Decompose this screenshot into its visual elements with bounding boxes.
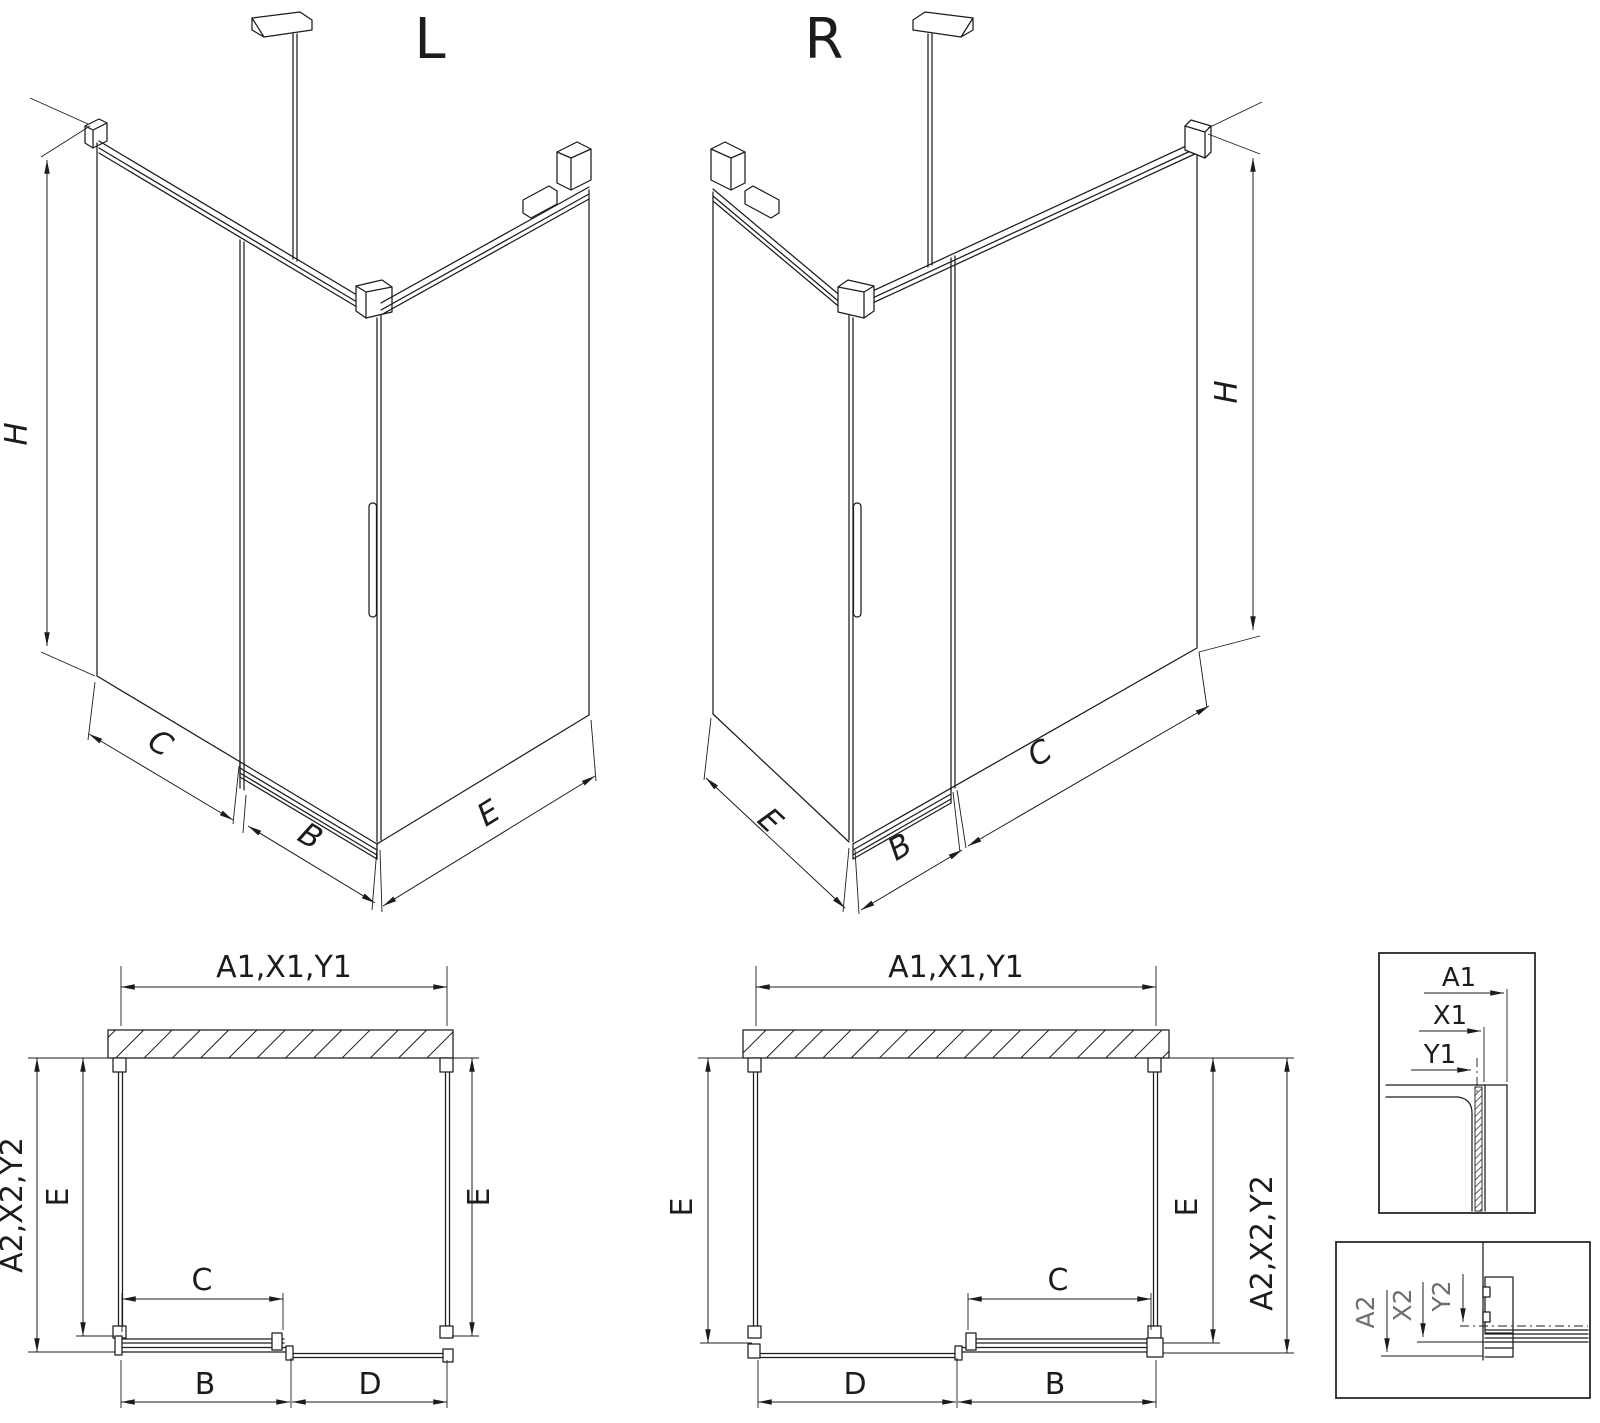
door-handle-plan (272, 1333, 282, 1350)
door-handle-plan (966, 1333, 976, 1350)
dim-fixed-d: D (292, 1360, 447, 1408)
dim-label-d: D (843, 1367, 866, 1402)
dim-label-c: C (1022, 732, 1059, 774)
rail-clamp (523, 186, 557, 218)
door-handle (369, 503, 377, 617)
wall-section (743, 1030, 1169, 1058)
dim-width-a1: A1,X1,Y1 (121, 950, 447, 1026)
wall-profile-left (711, 142, 745, 190)
dim-label-e: E (1170, 1198, 1205, 1217)
ceiling-bracket-icon (252, 12, 312, 37)
dim-a2-side: A2,X2,Y2 (1245, 1058, 1287, 1353)
dim-door-b: B (958, 1360, 1156, 1408)
rail-clamp (745, 186, 779, 218)
wall-section (108, 1030, 453, 1058)
dim-c: C (88, 682, 239, 824)
wall-profile-section (1386, 1085, 1507, 1211)
iso-right-title: R (805, 7, 844, 72)
dim-label-h: H (1209, 380, 1245, 403)
dim-e-right: E (1170, 1058, 1213, 1343)
glass-section (1475, 1087, 1482, 1211)
dim-b: B (855, 792, 962, 914)
dim-label-a1x1y1: A1,X1,Y1 (216, 950, 352, 985)
dim-label-e: E (41, 1188, 76, 1207)
plan-view-right: A1,X1,Y1 E E A2,X2,Y2 (665, 950, 1294, 1408)
iso-view-left: L (0, 7, 596, 912)
drawing-canvas: L (0, 0, 1600, 1423)
dim-door-b: B (121, 1360, 290, 1408)
dim-height: H (0, 126, 95, 676)
dim-e-right: E (462, 1058, 497, 1336)
side-panel-right (440, 1058, 453, 1338)
dim-label-a2x2y2: A2,X2,Y2 (1245, 1175, 1280, 1311)
dim-label-b: B (882, 826, 919, 868)
dim-e-left: E (665, 1058, 708, 1343)
dim-height: H (1199, 134, 1260, 652)
side-glass-panel-e (377, 187, 589, 844)
dim-a2-side: A2,X2,Y2 (0, 1058, 37, 1352)
front-glass-wall (97, 141, 377, 844)
dim-label-h: H (0, 422, 35, 445)
side-glass-panel-e (713, 189, 849, 842)
detail-label-x1: X1 (1433, 1001, 1467, 1031)
door-roller-section (1460, 1277, 1588, 1357)
detail-label-a2: A2 (1351, 1295, 1380, 1328)
dim-label-e: E (750, 801, 789, 841)
dim-opening-c: C (122, 1263, 283, 1332)
ceiling-support-bar (252, 12, 312, 261)
dim-label-b: B (292, 816, 329, 858)
front-glass-wall (851, 141, 1197, 844)
dim-e: E (704, 718, 849, 912)
dim-label-c: C (142, 722, 179, 764)
dim-label-c: C (1048, 1263, 1069, 1298)
sliding-door-plan (962, 1333, 1163, 1357)
dim-e-left: E (41, 1058, 83, 1336)
wall-profile-right (557, 142, 591, 190)
ceiling-support-bar (913, 12, 973, 267)
shower-enclosure-technical-drawing: L (0, 0, 1600, 1423)
dim-label-b: B (195, 1367, 216, 1402)
detail-label-x2: X2 (1388, 1288, 1417, 1321)
dim-label-a1x1y1: A1,X1,Y1 (888, 950, 1024, 985)
dim-label-e: E (471, 793, 507, 834)
dim-b: B (243, 795, 377, 910)
fixed-panel-plan (286, 1346, 453, 1362)
dim-label-d: D (358, 1367, 381, 1402)
dim-label-e: E (665, 1198, 700, 1217)
detail-label-y1: Y1 (1423, 1040, 1456, 1070)
dim-opening-c: C (968, 1263, 1151, 1330)
dim-fixed-d: D (758, 1360, 956, 1408)
detail-label-a1: A1 (1442, 963, 1476, 993)
ceiling-bracket-icon (913, 12, 973, 37)
dim-e: E (380, 720, 596, 912)
iso-left-title: L (414, 7, 445, 72)
plan-view-left: A1,X1,Y1 E A2,X2,Y2 (0, 950, 497, 1408)
side-panel-left (748, 1058, 761, 1338)
dim-label-e: E (462, 1188, 497, 1207)
dim-label-a2x2y2: A2,X2,Y2 (0, 1137, 30, 1273)
dim-label-c: C (192, 1263, 213, 1298)
dim-width-a1: A1,X1,Y1 (756, 950, 1156, 1026)
detail-view-top: A1 X1 Y1 (1379, 953, 1535, 1213)
side-panel-left (113, 1058, 126, 1338)
iso-view-right: R (704, 7, 1262, 914)
dim-label-b: B (1045, 1367, 1066, 1402)
detail-view-bottom: A2 X2 Y2 (1336, 1242, 1590, 1398)
fixed-panel-plan (748, 1344, 962, 1360)
detail-label-y2: Y2 (1427, 1280, 1456, 1312)
door-handle (854, 503, 862, 617)
dim-c: C (957, 652, 1209, 848)
sliding-door-plan (115, 1333, 290, 1355)
corner-connector-top (838, 280, 874, 318)
side-panel-right (1148, 1058, 1161, 1338)
